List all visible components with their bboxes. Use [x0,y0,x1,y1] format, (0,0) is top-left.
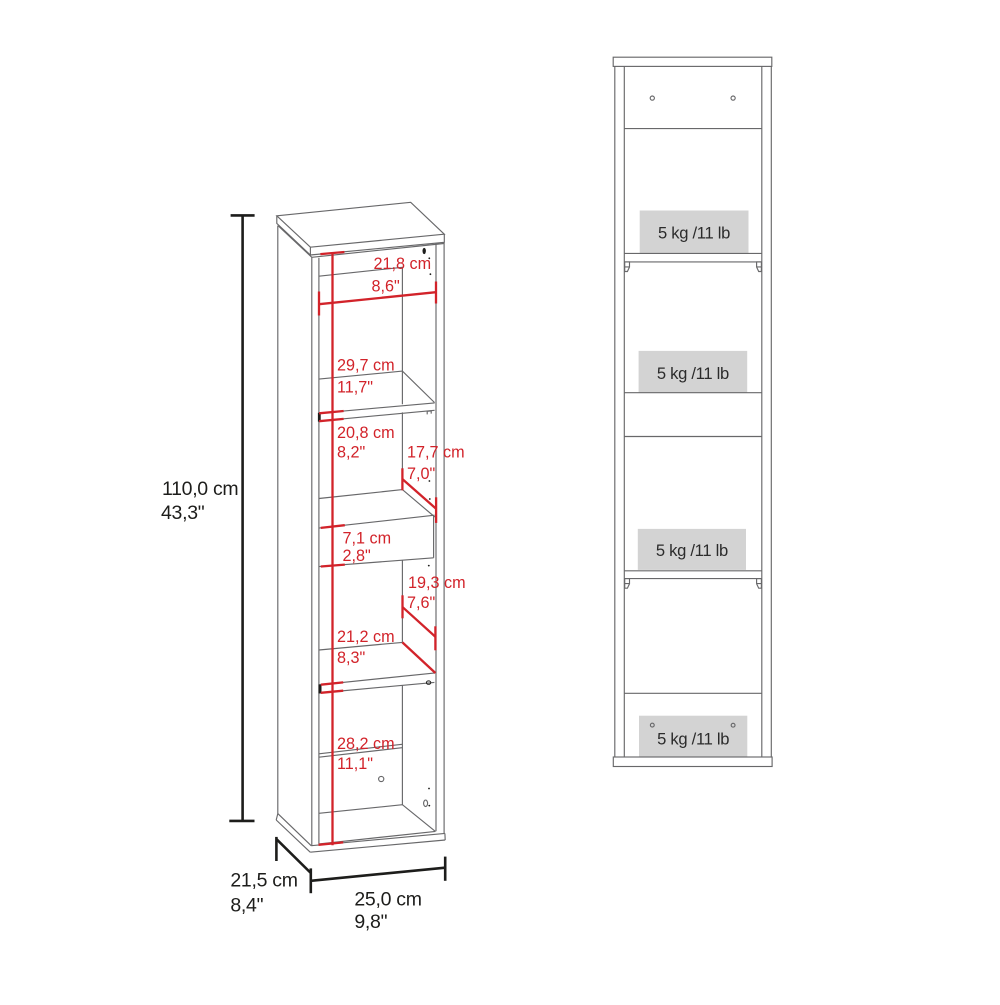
svg-text:5 kg /11 lb: 5 kg /11 lb [657,364,729,383]
svg-text:8,2": 8,2" [337,444,366,462]
svg-text:21,5 cm: 21,5 cm [230,870,297,892]
svg-text:17,7 cm: 17,7 cm [407,444,465,462]
svg-text:20,8 cm: 20,8 cm [337,424,395,442]
svg-text:11,1": 11,1" [337,755,373,773]
svg-text:9,8": 9,8" [354,911,387,933]
svg-text:5 kg /11 lb: 5 kg /11 lb [657,729,729,748]
svg-text:21,8 cm: 21,8 cm [374,255,432,273]
svg-text:43,3": 43,3" [161,502,205,524]
svg-text:11,7": 11,7" [337,379,373,397]
svg-text:8,6": 8,6" [372,278,401,296]
svg-text:28,2 cm: 28,2 cm [337,735,395,753]
svg-text:7,1 cm: 7,1 cm [343,530,392,548]
svg-text:25,0 cm: 25,0 cm [354,889,421,911]
svg-text:5 kg /11 lb: 5 kg /11 lb [656,541,728,560]
svg-text:5 kg /11 lb: 5 kg /11 lb [658,223,730,242]
svg-text:7,6": 7,6" [407,594,436,612]
svg-text:8,3": 8,3" [337,649,366,667]
svg-text:110,0 cm: 110,0 cm [162,478,238,500]
svg-text:2,8": 2,8" [343,547,372,565]
svg-text:19,3 cm: 19,3 cm [408,574,466,592]
svg-text:29,7 cm: 29,7 cm [337,357,395,375]
svg-text:7,0": 7,0" [407,465,436,483]
svg-text:8,4": 8,4" [230,895,263,917]
svg-text:21,2 cm: 21,2 cm [337,628,395,646]
